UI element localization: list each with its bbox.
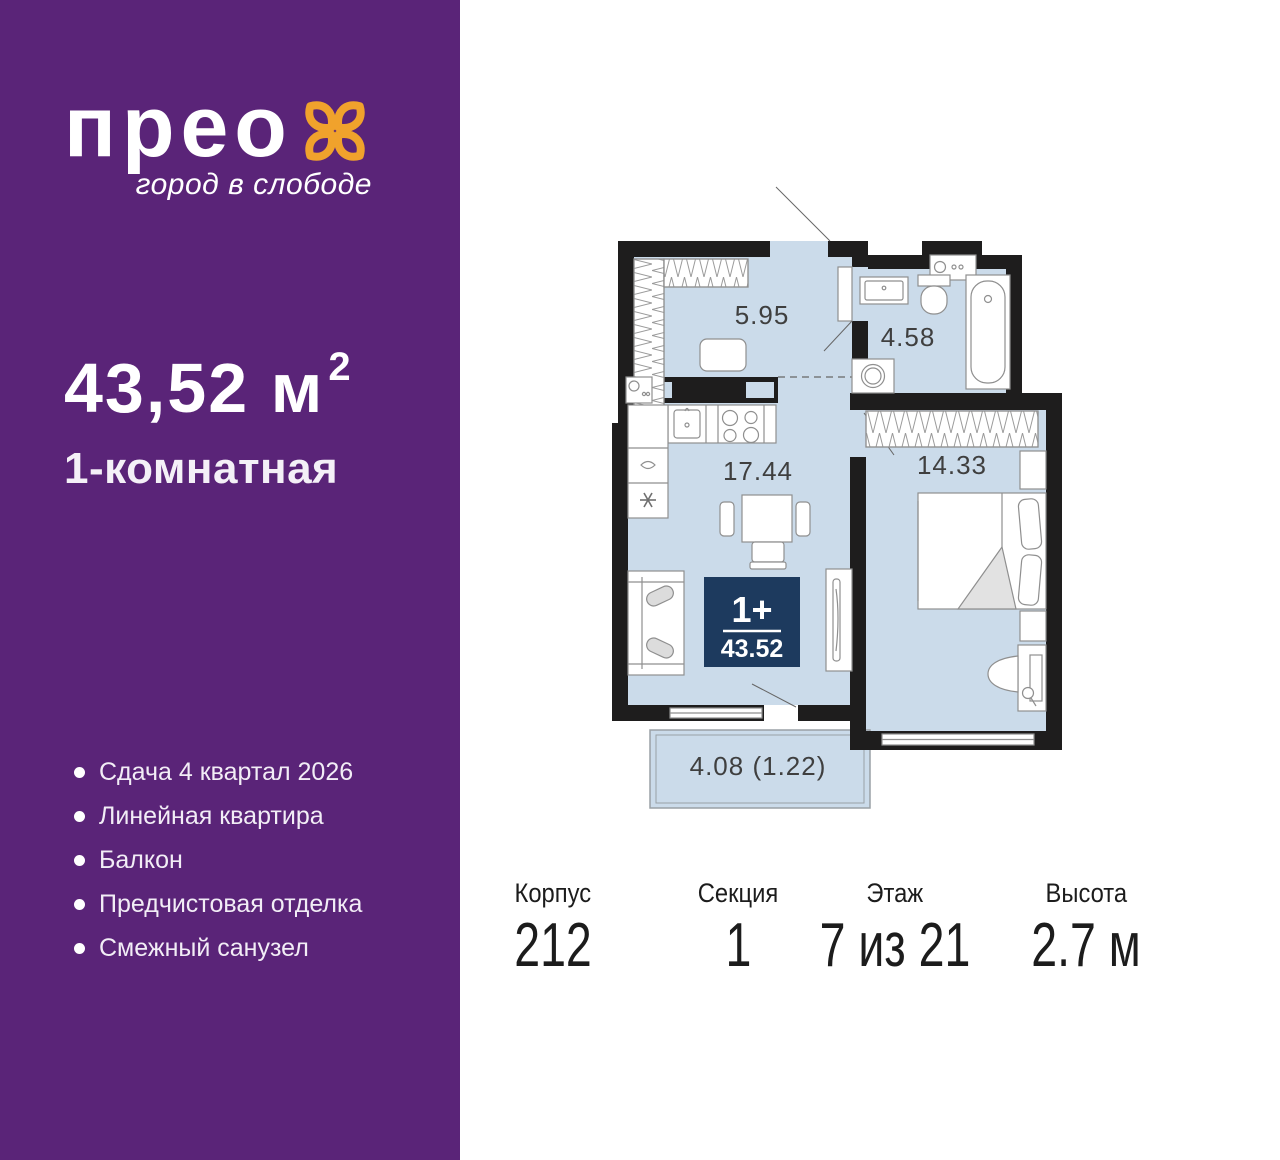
feature-label: Сдача 4 квартал 2026 xyxy=(99,758,353,787)
feature-list: Сдача 4 квартал 2026 Линейная квартира Б… xyxy=(74,750,362,970)
bullet-icon xyxy=(74,855,85,866)
logo-text: прео xyxy=(64,84,293,170)
bullet-icon xyxy=(74,899,85,910)
detail-height: Высота 2.7 м xyxy=(1013,880,1159,977)
feature-label: Балкон xyxy=(99,846,183,875)
floorplan: 5.95 4.58 17.44 14.33 4.08 (1.22) 1+ 43.… xyxy=(600,180,1080,870)
apartment-badge: 1+ 43.52 xyxy=(704,577,800,667)
detail-label: Секция xyxy=(698,880,779,907)
bullet-icon xyxy=(74,943,85,954)
badge-rooms: 1+ xyxy=(731,589,772,630)
feature-item: Сдача 4 квартал 2026 xyxy=(74,750,362,794)
flower-logo-icon xyxy=(297,97,373,170)
detail-floor: Этаж 7 из 21 xyxy=(795,880,996,977)
feature-item: Смежный санузел xyxy=(74,926,362,970)
bullet-icon xyxy=(74,767,85,778)
feature-item: Предчистовая отделка xyxy=(74,882,362,926)
room-label-bedroom: 14.33 xyxy=(917,450,987,480)
feature-label: Смежный санузел xyxy=(99,934,309,963)
apartment-type: 1-комнатная xyxy=(64,444,338,494)
detail-building: Корпус 212 xyxy=(501,880,604,977)
room-label-kitchen-living: 17.44 xyxy=(723,456,793,486)
area-value: 43,52 м xyxy=(64,349,324,427)
room-label-hallway: 5.95 xyxy=(735,300,790,330)
detail-value: 7 из 21 xyxy=(820,915,971,977)
bullet-icon xyxy=(74,811,85,822)
feature-label: Линейная квартира xyxy=(99,802,324,831)
area-superscript: 2 xyxy=(328,345,350,389)
detail-label: Этаж xyxy=(867,880,924,907)
apartment-area: 43,52 м2 xyxy=(64,348,347,428)
room-label-balcony: 4.08 (1.22) xyxy=(690,751,827,781)
detail-label: Корпус xyxy=(515,880,592,907)
detail-section: Секция 1 xyxy=(692,880,784,977)
detail-value: 212 xyxy=(514,915,592,977)
sidebar: прео город в слободе 43,52 м2 1-комнатна… xyxy=(0,0,460,1160)
detail-label: Высота xyxy=(1045,880,1127,907)
logo-tagline: город в слободе xyxy=(58,168,372,202)
badge-area: 43.52 xyxy=(721,635,784,663)
room-label-bathroom: 4.58 xyxy=(881,322,936,352)
detail-value: 1 xyxy=(725,915,751,977)
wall-niche xyxy=(746,382,774,398)
feature-item: Балкон xyxy=(74,838,362,882)
feature-item: Линейная квартира xyxy=(74,794,362,838)
feature-label: Предчистовая отделка xyxy=(99,890,362,919)
detail-value: 2.7 м xyxy=(1031,915,1141,977)
